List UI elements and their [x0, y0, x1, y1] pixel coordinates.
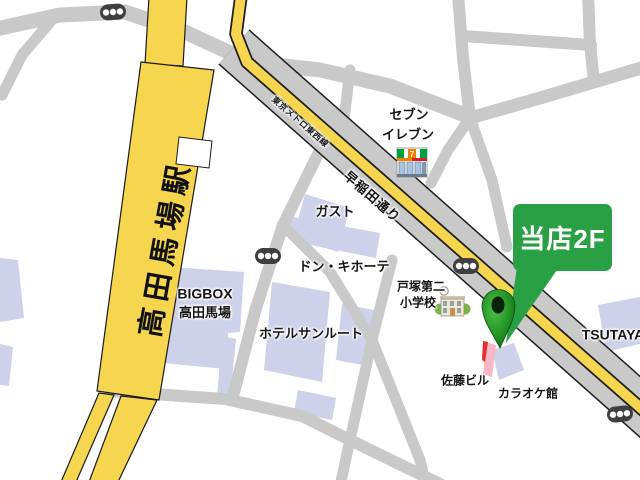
don-quijote-label: ドン・キホーテ: [298, 260, 389, 274]
station-area-map: 7: [0, 0, 640, 480]
building-left-edge-upper: [0, 258, 24, 322]
tsutaya-label: TSUTAYA: [582, 328, 640, 343]
sato-building-footprint: [492, 343, 524, 380]
bigbox-label-line2: 高田馬場: [179, 306, 231, 320]
seven-eleven-glyph: 7: [410, 150, 415, 159]
building-left-edge-lower: [0, 344, 13, 386]
road-junction-to-waseda: [470, 118, 507, 247]
school-label-line2: 小学校: [400, 297, 436, 310]
shop-callout-label: 当店2F: [519, 219, 605, 256]
jr-railway: [61, 0, 214, 480]
road-northeast: [470, 66, 640, 118]
bigbox-label-line1: BIGBOX: [177, 287, 232, 302]
hotel-sunroute-label: ホテルサンルート: [259, 327, 363, 341]
seven-eleven-label-line1: セブン: [389, 108, 428, 122]
karaoke-kan-label: カラオケ館: [498, 388, 558, 401]
map-pin-hole: [492, 297, 505, 314]
seven-eleven-icon: 7: [397, 148, 427, 177]
seven-eleven-label-line2: イレブン: [382, 128, 434, 142]
shop-callout: 当店2F: [513, 204, 612, 271]
road-to-seven-eleven-corner: [431, 118, 470, 183]
jr-track-north: [145, 0, 187, 66]
sato-building-label: 佐藤ビル: [441, 375, 489, 388]
traffic-light-icon: [255, 248, 281, 264]
school-label-line1: 戸塚第二: [397, 281, 445, 294]
gusto-label: ガスト: [315, 205, 354, 219]
road-south-west: [110, 391, 440, 480]
traffic-light-icon: [99, 3, 126, 21]
road-north-cross: [463, 36, 591, 45]
traffic-light-icon: [453, 258, 479, 274]
road-north-1: [458, 0, 470, 118]
